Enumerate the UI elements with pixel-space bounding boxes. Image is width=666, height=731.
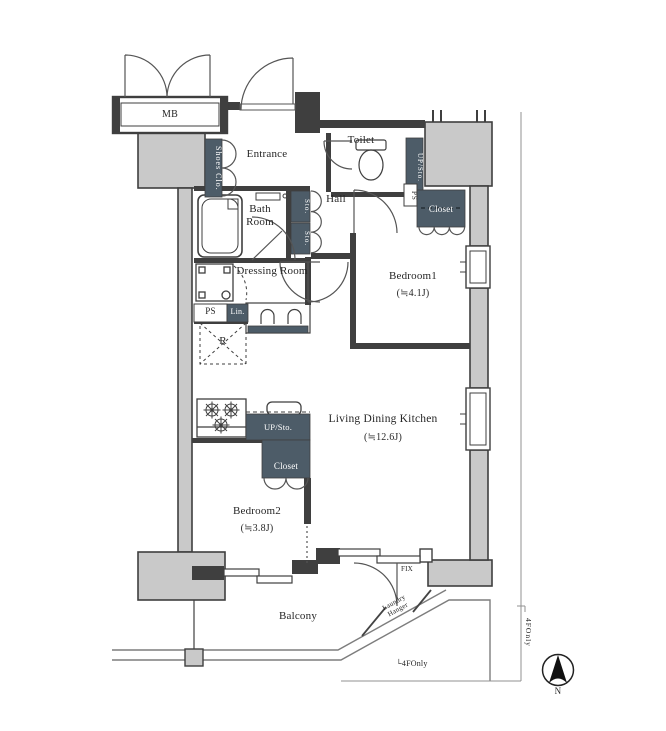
- closet-bedroom1-label: Closet: [417, 204, 465, 215]
- stove-burner: [213, 417, 230, 434]
- closet-bedroom2-label: Closet: [262, 461, 310, 472]
- bedroom2-slider-panel: [224, 569, 259, 576]
- floor-note-right: 4FOnly: [518, 608, 532, 656]
- fix-window: [420, 549, 432, 562]
- refrigerator-label: R: [213, 335, 233, 348]
- mb-label: MB: [121, 103, 219, 126]
- ldk-slider-panel: [338, 549, 380, 556]
- wall-ticks: [433, 110, 485, 122]
- toilet-label: Toilet: [336, 134, 386, 147]
- ps-top-label: PS: [403, 186, 418, 205]
- bedroom2-label: Bedroom2: [214, 505, 300, 518]
- mb-door-right: [167, 55, 210, 97]
- bedroom2-size-label: (≒3.8J): [219, 523, 295, 535]
- bathtub: [198, 195, 242, 257]
- ldk-label: Living Dining Kitchen: [320, 413, 446, 427]
- balcony-post: [185, 649, 203, 666]
- fix-label: FIX: [394, 565, 420, 573]
- pillar-balcony-right: [428, 560, 492, 586]
- stove-burner: [204, 402, 221, 419]
- ldk-door: [308, 262, 348, 302]
- closet1-bifold: [419, 227, 465, 235]
- shoes-closet-label: Shoes Clo.: [203, 141, 223, 196]
- bedroom1-label: Bedroom1: [370, 270, 456, 283]
- north-arrow: [543, 655, 574, 686]
- storage-lower-label: Sto.: [289, 224, 311, 253]
- dressing-room-label: Dressing Room: [234, 265, 310, 278]
- up-storage-kitchen-label: UP/Sto.: [246, 416, 310, 438]
- closet2-bifold: [264, 478, 308, 489]
- bedroom2-slider-panel: [257, 576, 292, 583]
- ldk-size-label: (≒12.6J): [345, 432, 421, 444]
- entrance-threshold: [240, 104, 295, 110]
- ps-left-label: PS: [194, 306, 227, 317]
- mb-door-left: [125, 55, 167, 97]
- floor-note-bottom: └4FOnly: [396, 659, 452, 668]
- balcony-label: Balcony: [260, 610, 336, 623]
- bath-room-label: Bath Room: [237, 203, 283, 229]
- floor-plan: MB Shoes Clo. Entrance Toilet UP/Sto. PS…: [0, 0, 666, 731]
- entrance-label: Entrance: [230, 148, 304, 161]
- entrance-door: [241, 58, 293, 110]
- hall-label: Hall: [318, 193, 354, 206]
- vanity-counter-strip: [248, 326, 308, 333]
- bedroom1-size-label: (≒4.1J): [375, 288, 451, 300]
- bath-shelf: [256, 193, 287, 200]
- stove-burner: [223, 402, 240, 419]
- north-label: N: [548, 686, 568, 697]
- ldk-slider-panel: [377, 556, 420, 563]
- storage-upper-label: Sto.: [289, 192, 311, 221]
- closet-bedroom2-box: [262, 440, 310, 478]
- pillar-top-right: [425, 122, 492, 186]
- linen-label: Lin.: [227, 307, 248, 316]
